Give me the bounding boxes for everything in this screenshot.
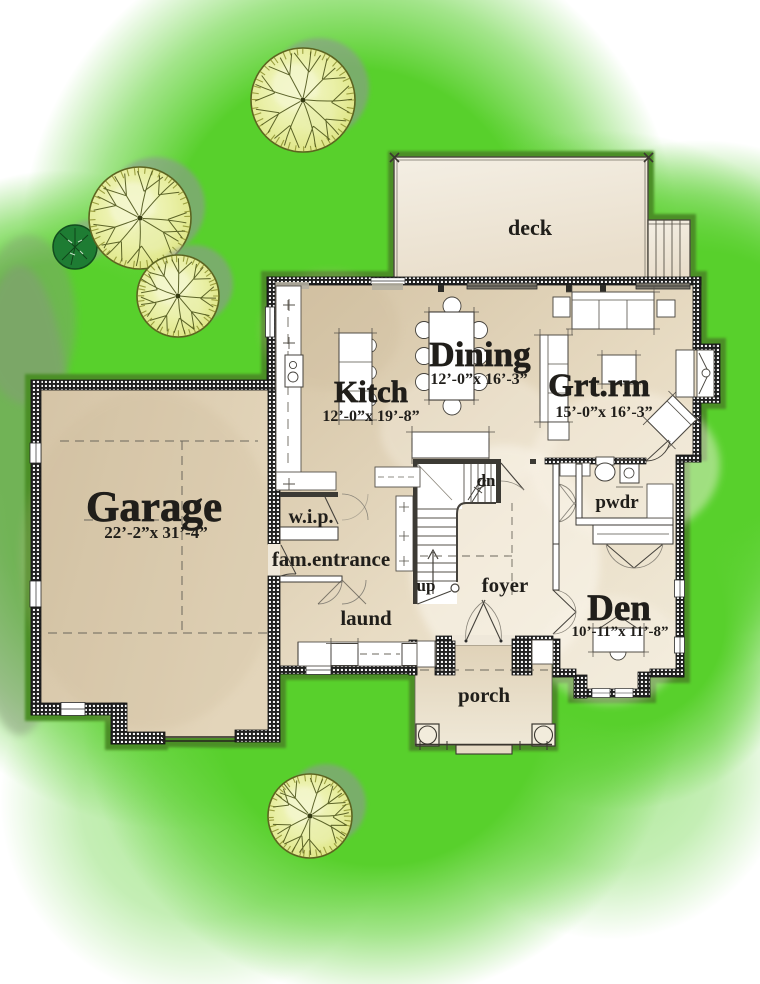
svg-text:deck: deck (508, 215, 553, 240)
svg-text:15’-0”x 16’-3”: 15’-0”x 16’-3” (555, 404, 652, 421)
svg-text:foyer: foyer (482, 573, 529, 597)
svg-text:10’-11”x 11’-8”: 10’-11”x 11’-8” (571, 624, 668, 640)
svg-text:Den: Den (587, 588, 651, 629)
svg-text:Dining: Dining (429, 335, 531, 374)
svg-text:Kitch: Kitch (334, 374, 408, 409)
svg-text:12’-0”x 16’-3”: 12’-0”x 16’-3” (430, 371, 527, 388)
svg-text:laund: laund (340, 606, 392, 630)
svg-text:porch: porch (458, 683, 510, 707)
svg-text:w.i.p.: w.i.p. (288, 506, 333, 528)
svg-text:pwdr: pwdr (595, 492, 639, 513)
svg-text:up: up (417, 576, 436, 595)
svg-text:22’-2”x 31’-4”: 22’-2”x 31’-4” (104, 523, 207, 542)
svg-text:fam.entrance: fam.entrance (272, 547, 390, 571)
svg-text:Grt.rm: Grt.rm (548, 368, 650, 404)
svg-text:12’-0”x 19’-8”: 12’-0”x 19’-8” (322, 408, 419, 425)
svg-text:dn: dn (477, 471, 496, 490)
